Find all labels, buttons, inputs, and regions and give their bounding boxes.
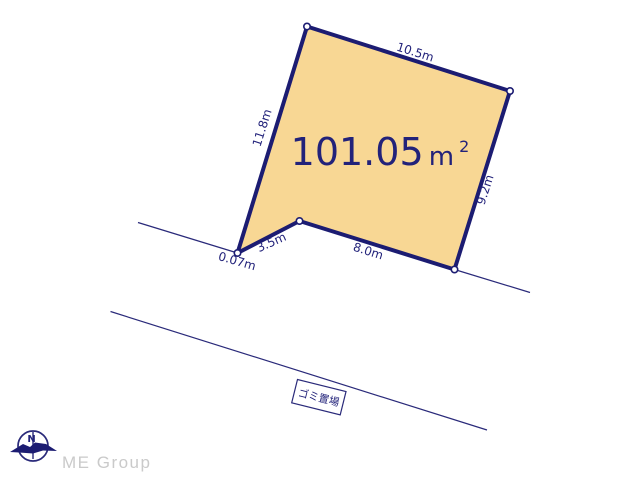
vertex-marker-bottom-left — [234, 250, 240, 256]
plot-area-superscript: 2 — [459, 137, 469, 156]
road-boundary-line-upper-left — [138, 223, 238, 254]
logo-text: ME Group — [62, 453, 151, 472]
road-boundary-line-upper-right — [455, 270, 531, 293]
plot-area-unit: m — [429, 142, 454, 172]
road-boundary-line-lower — [111, 312, 488, 431]
vertex-marker-top-left — [304, 23, 310, 29]
compass-north-icon: N — [10, 431, 57, 461]
land-plot-diagram-page: 101.05 m 2 10.5m 11.8m 9.2m 8.0m 3.5m 0.… — [0, 0, 640, 480]
diagram-canvas: 101.05 m 2 10.5m 11.8m 9.2m 8.0m 3.5m 0.… — [0, 0, 640, 480]
vertex-marker-notch — [296, 218, 302, 224]
vertex-marker-bottom-right — [451, 266, 457, 272]
plot-area-value: 101.05 — [291, 130, 424, 174]
compass-north-label: N — [27, 434, 35, 445]
garbage-place-box: ゴミ置場 — [292, 380, 346, 415]
vertex-marker-top-right — [507, 88, 513, 94]
